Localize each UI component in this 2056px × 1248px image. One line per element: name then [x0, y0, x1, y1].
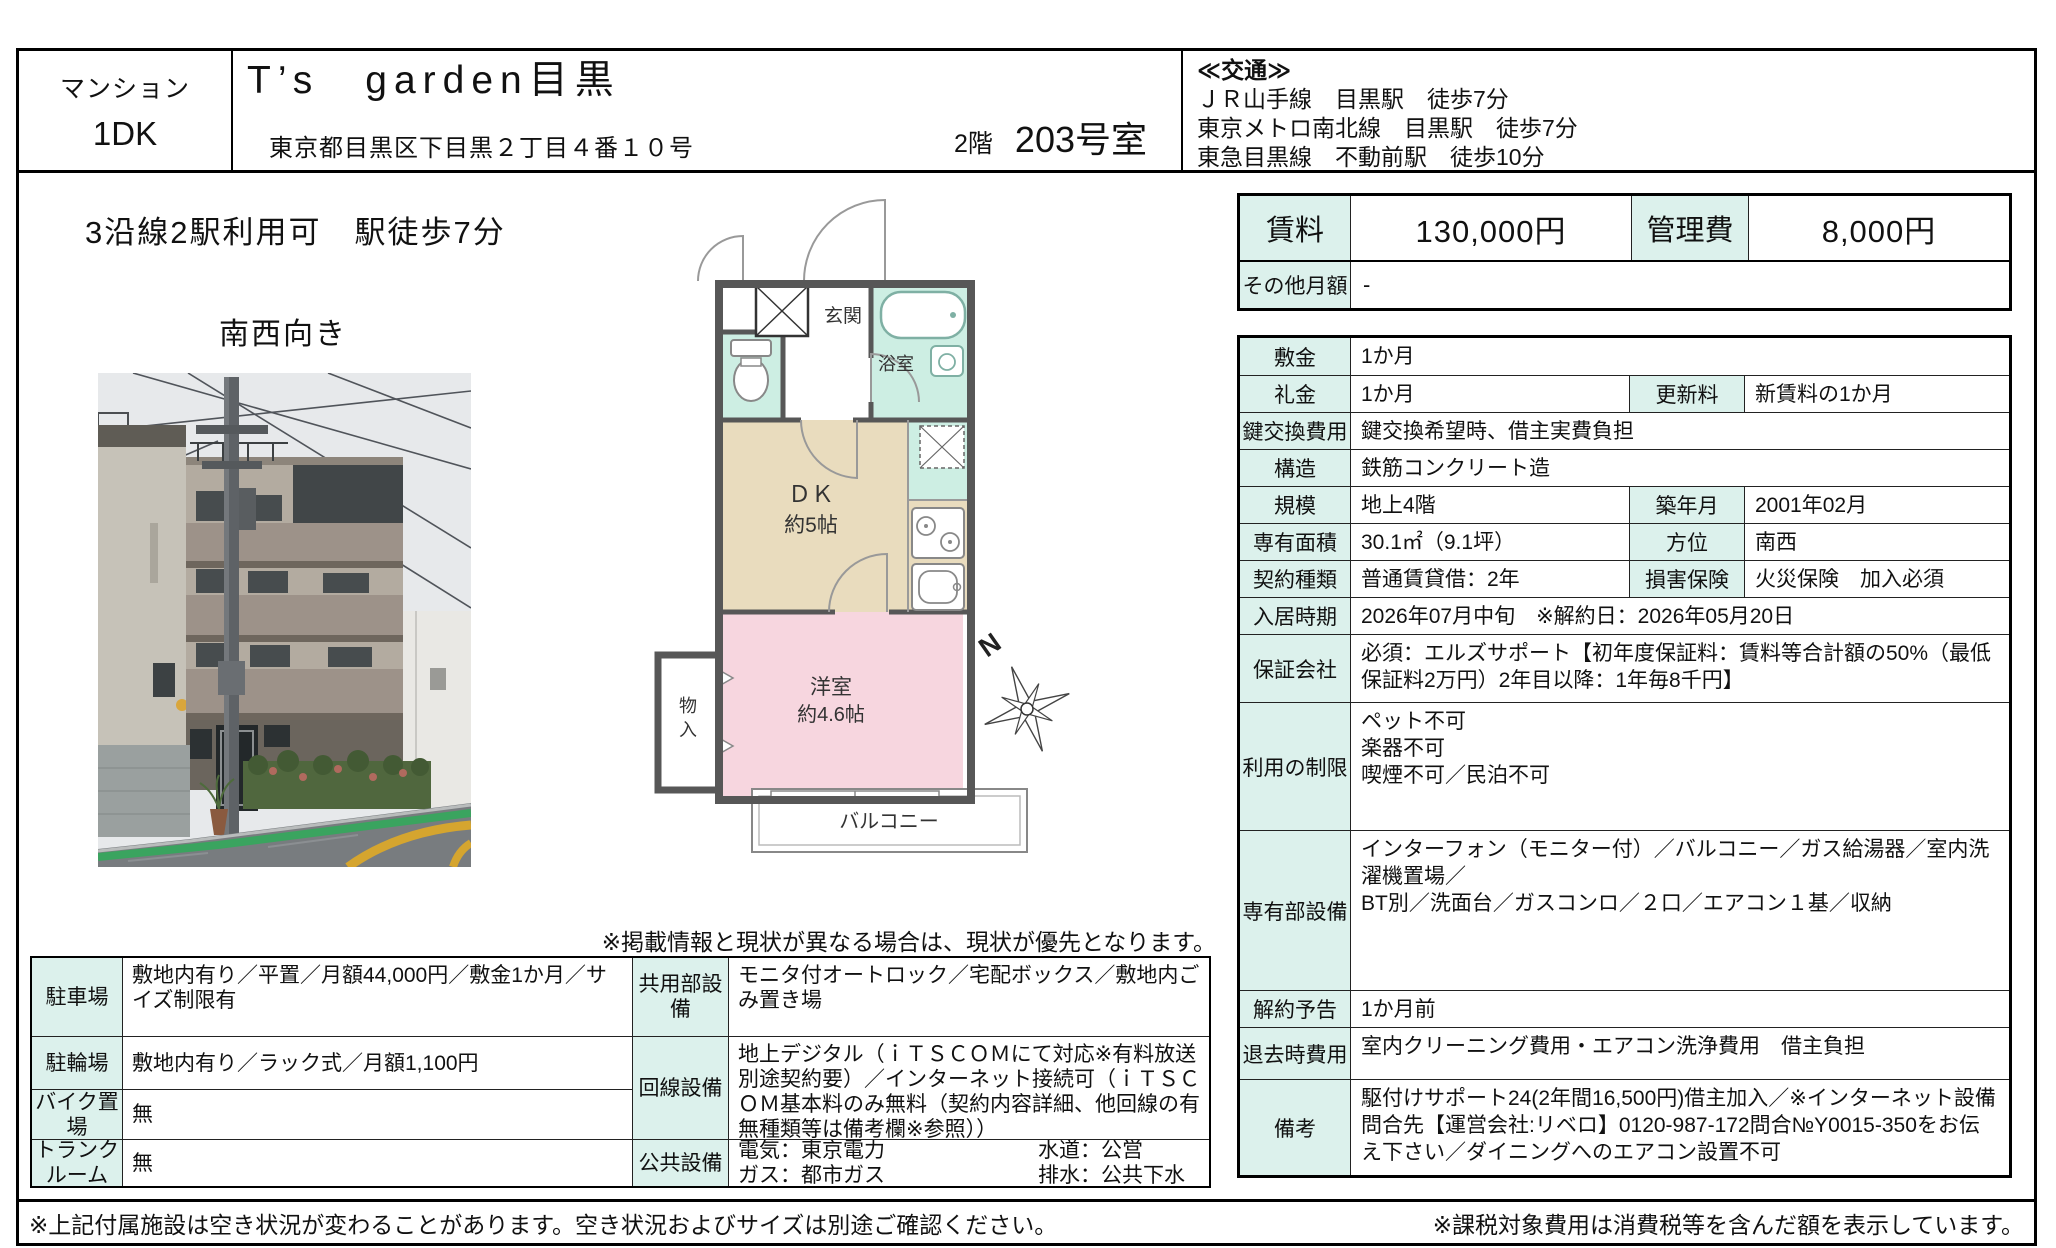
common-equip-value: モニタ付オートロック／宅配ボックス／敷地内ごみ置き場 [728, 958, 1209, 1036]
table-row: 規模 地上4階 築年月 2001年02月 [1240, 486, 2009, 523]
washer-box-icon [920, 426, 964, 468]
neighbor-building [98, 413, 188, 803]
row-label: 敷金 [1240, 338, 1351, 375]
storage-label-2: 入 [679, 720, 697, 740]
row-value: 普通賃貸借：2年 [1351, 561, 1629, 597]
table-row: 備考 駆付けサポート24(2年間16,500円)借主加入／※インターネット設備問… [1240, 1079, 2009, 1175]
parking-label: 駐車場 [32, 958, 122, 1036]
row-value: 鍵交換希望時、借主実費負担 [1351, 413, 2009, 449]
document-page: マンション 1DK T’s garden目黒 東京都目黒区下目黒２丁目４番１０号… [16, 48, 2037, 1246]
table-row: 契約種類 普通賃貸借：2年 損害保険 火災保険 加入必須 [1240, 560, 2009, 597]
row-value: 地上4階 [1351, 487, 1629, 523]
row-sub-label: 築年月 [1629, 487, 1745, 523]
public-utility-label: 公共設備 [632, 1139, 728, 1186]
row-label: 備考 [1240, 1080, 1351, 1175]
row-value: 2026年07月中旬 ※解約日：2026年05月20日 [1351, 598, 2009, 634]
row-label: 利用の制限 [1240, 703, 1351, 830]
row-value: 鉄筋コンクリート造 [1351, 450, 2009, 486]
access-line-1: ＪＲ山手線 目黒駅 徒歩7分 [1197, 85, 2020, 114]
table-row: 利用の制限 ペット不可 楽器不可 喫煙不可／民泊不可 [1240, 702, 2009, 830]
building-name: T’s garden目黒 [247, 55, 1181, 107]
catch-copy-line2: 南西向き [219, 309, 347, 353]
table-row: 保証会社 必須：エルズサポート【初年度保証料：賃料等合計額の50%（最低保証料2… [1240, 634, 2009, 702]
row-value: 必須：エルズサポート【初年度保証料：賃料等合計額の50%（最低保証料2万円）2年… [1351, 635, 2009, 702]
table-row: 専有部設備 インターフォン（モニター付）／バルコニー／ガス給湯器／室内洗濯機置場… [1240, 830, 2009, 990]
shaft-box-icon [756, 286, 808, 336]
row-label: 契約種類 [1240, 561, 1351, 597]
other-monthly-label: その他月額 [1240, 262, 1351, 308]
public-utility-value: 電気：東京電力 ガス：都市ガス 水道：公営 排水：公共下水 [728, 1139, 1209, 1186]
property-type: マンション [60, 69, 190, 105]
row-label: 解約予告 [1240, 991, 1351, 1027]
access-title: ≪交通≫ [1197, 56, 2020, 85]
rent-label: 賃料 [1240, 196, 1351, 260]
bathroom-label: 浴室 [878, 354, 914, 374]
disclaimer-note: ※掲載情報と現状が異なる場合は、現状が優先となります。 [419, 923, 1216, 957]
compass-icon: N [969, 627, 1079, 767]
rent-table: 賃料 130,000円 管理費 8,000円 その他月額 - [1237, 193, 2012, 311]
bathtub-icon [881, 292, 965, 338]
row-sub-label: 損害保険 [1629, 561, 1745, 597]
other-monthly-row: その他月額 - [1240, 262, 2009, 308]
row-label: 礼金 [1240, 376, 1351, 412]
row-value: 駆付けサポート24(2年間16,500円)借主加入／※インターネット設備問合先【… [1351, 1080, 2009, 1175]
other-monthly-value: - [1351, 262, 2009, 308]
rent-row: 賃料 130,000円 管理費 8,000円 [1240, 196, 2009, 262]
header-access-cell: ≪交通≫ ＪＲ山手線 目黒駅 徒歩7分 東京メトロ南北線 目黒駅 徒歩7分 東急… [1183, 51, 2034, 170]
row-label: 規模 [1240, 487, 1351, 523]
row-label: 構造 [1240, 450, 1351, 486]
trunk-value: 無 [122, 1139, 632, 1186]
row-label: 入居時期 [1240, 598, 1351, 634]
row-label: 専有面積 [1240, 524, 1351, 560]
property-sheet: { "header": { "property_type": "マンション", … [0, 0, 2056, 1248]
row-value: 1か月 [1351, 376, 1629, 412]
layout-type: 1DK [93, 115, 157, 153]
row-sub-value: 新賃料の1か月 [1745, 376, 2009, 412]
common-equip-label: 共用部設備 [632, 958, 728, 1036]
mgmt-fee-value: 8,000円 [1749, 196, 2009, 260]
bedroom-label-2: 約4.6帖 [797, 703, 865, 726]
rent-value: 130,000円 [1351, 196, 1631, 260]
footer-note-right: ※課税対象費用は消費税等を含んだ額を表示しています。 [1433, 1206, 2024, 1240]
table-row: 構造 鉄筋コンクリート造 [1240, 449, 2009, 486]
table-row: 解約予告 1か月前 [1240, 990, 2009, 1027]
trunk-label: トランクルーム [32, 1139, 122, 1186]
row-value: インターフォン（モニター付）／バルコニー／ガス給湯器／室内洗濯機置場／ BT別／… [1351, 831, 2009, 990]
table-row: 鍵交換費用 鍵交換希望時、借主実費負担 [1240, 412, 2009, 449]
row-label: 鍵交換費用 [1240, 413, 1351, 449]
row-sub-value: 2001年02月 [1745, 487, 2009, 523]
public-utility-right: 水道：公営 排水：公共下水 [1038, 1139, 1200, 1186]
header-type-cell: マンション 1DK [19, 51, 233, 170]
network-value: 地上デジタル（ｉＴＳＣＯＭにて対応※有料放送別途契約要）／インターネット接続可（… [728, 1036, 1209, 1139]
exterior-photo-illustration [98, 373, 471, 867]
table-row: 専有面積 30.1㎡（9.1坪） 方位 南西 [1240, 523, 2009, 560]
mgmt-fee-label: 管理費 [1631, 196, 1749, 260]
table-row: 敷金 1か月 [1240, 338, 2009, 375]
balcony-label: バルコニー [839, 811, 939, 833]
stove-icon [912, 508, 964, 558]
catch-copy-line1: 3沿線2駅利用可 駅徒歩7分 [85, 207, 506, 252]
row-sub-value: 南西 [1745, 524, 2009, 560]
floorplan-drawing: 玄関 浴室 ＤＫ 約5帖 洋室 約4.6帖 物 入 バルコニー N [619, 146, 1079, 936]
entrance-door-arc-small-icon [698, 236, 743, 281]
parking-value: 敷地内有り／平置／月額44,000円／敷金1か月／サイズ制限有 [122, 958, 632, 1036]
row-sub-label: 方位 [1629, 524, 1745, 560]
kitchen-sink-icon [912, 564, 964, 610]
row-sub-label: 更新料 [1629, 376, 1745, 412]
bicycle-value: 敷地内有り／ラック式／月額1,100円 [122, 1036, 632, 1089]
dk-label-1: ＤＫ [788, 481, 834, 507]
public-utility-left: 電気：東京電力 ガス：都市ガス [738, 1139, 1038, 1186]
table-row: 退去時費用 室内クリーニング費用・エアコン洗浄費用 借主負担 [1240, 1027, 2009, 1079]
row-sub-value: 火災保険 加入必須 [1745, 561, 2009, 597]
access-line-3: 東急目黒線 不動前駅 徒歩10分 [1197, 143, 2020, 172]
compass-north-label: N [973, 627, 1006, 663]
block-wall [98, 745, 190, 837]
bike-label: バイク置場 [32, 1089, 122, 1139]
row-value: 30.1㎡（9.1坪） [1351, 524, 1629, 560]
table-row: 入居時期 2026年07月中旬 ※解約日：2026年05月20日 [1240, 597, 2009, 634]
row-value: 1か月前 [1351, 991, 2009, 1027]
bike-value: 無 [122, 1089, 632, 1139]
row-value: ペット不可 楽器不可 喫煙不可／民泊不可 [1351, 703, 2009, 830]
table-row: 礼金 1か月 更新料 新賃料の1か月 [1240, 375, 2009, 412]
row-value: 1か月 [1351, 338, 2009, 375]
row-label: 専有部設備 [1240, 831, 1351, 990]
bedroom-label-1: 洋室 [810, 676, 852, 699]
row-value: 室内クリーニング費用・エアコン洗浄費用 借主負担 [1351, 1028, 2009, 1079]
row-label: 保証会社 [1240, 635, 1351, 702]
floorplan: 玄関 浴室 ＤＫ 約5帖 洋室 約4.6帖 物 入 バルコニー N [619, 146, 1079, 936]
facilities-table: 駐車場 敷地内有り／平置／月額44,000円／敷金1か月／サイズ制限有 駐輪場 … [30, 956, 1211, 1188]
network-label: 回線設備 [632, 1036, 728, 1139]
entrance-door-arc-icon [804, 200, 885, 281]
row-label: 退去時費用 [1240, 1028, 1351, 1079]
sink-icon [931, 346, 963, 376]
toilet-icon [731, 340, 771, 401]
exterior-photo [98, 373, 471, 867]
access-line-2: 東京メトロ南北線 目黒駅 徒歩7分 [1197, 114, 2020, 143]
footer-note-left: ※上記付属施設は空き状況が変わることがあります。空き状況およびサイズは別途ご確認… [29, 1206, 1057, 1240]
entrance-label: 玄関 [824, 305, 862, 327]
details-table: 敷金 1か月 礼金 1か月 更新料 新賃料の1か月 鍵交換費用 鍵交換希望時、借… [1237, 335, 2012, 1178]
storage-label-1: 物 [679, 696, 697, 716]
bicycle-label: 駐輪場 [32, 1036, 122, 1089]
dk-label-2: 約5帖 [784, 514, 838, 537]
footer-notes: ※上記付属施設は空き状況が変わることがあります。空き状況およびサイズは別途ご確認… [19, 1199, 2034, 1243]
